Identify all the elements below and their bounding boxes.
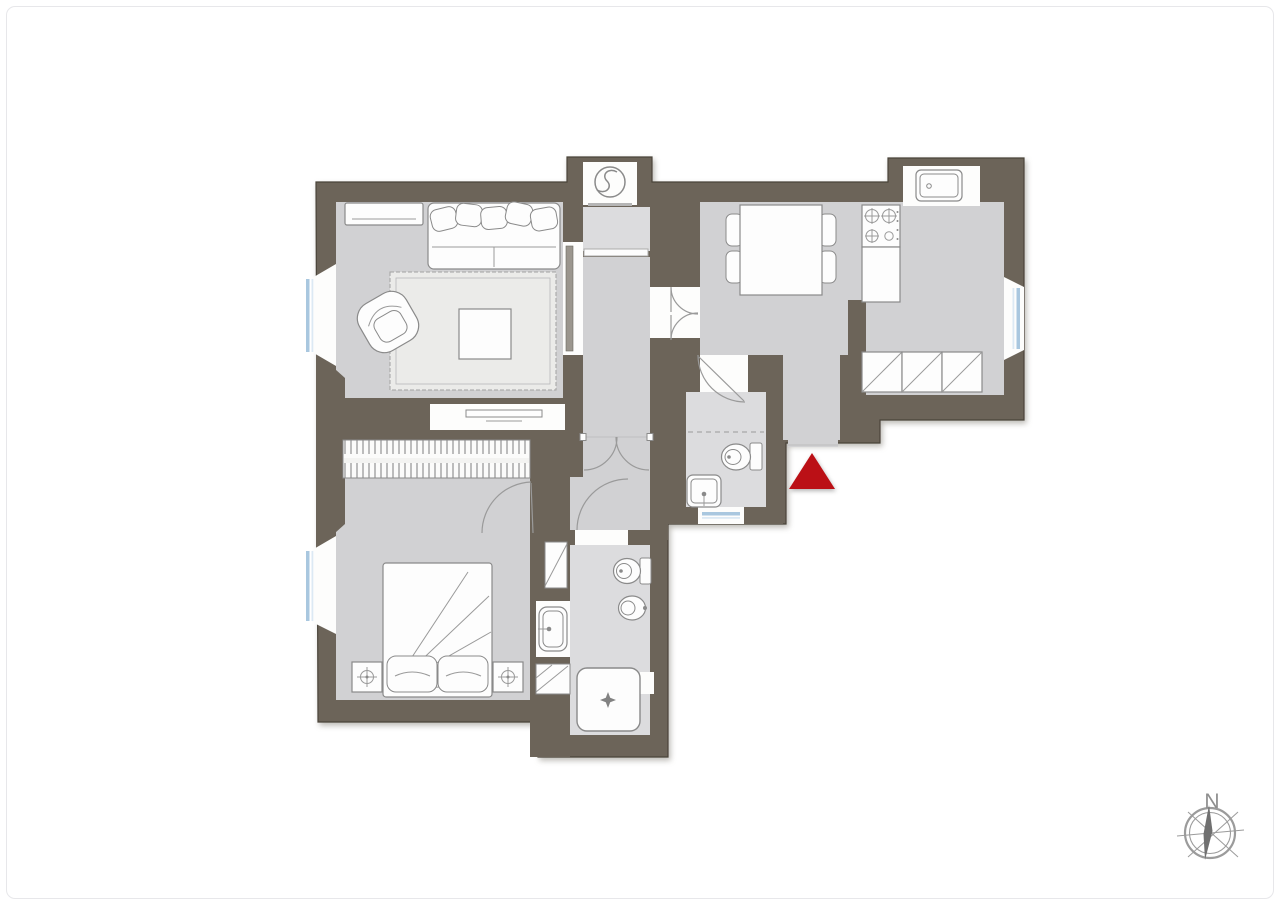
kitchen-sink (903, 166, 980, 206)
nightstand-left (352, 662, 382, 692)
entrance-marker (789, 453, 835, 489)
door-vestibule (584, 249, 648, 256)
bathroom-door-opening (575, 530, 628, 545)
base-cabinets (862, 352, 982, 392)
window-bedroom (306, 536, 336, 634)
sliding-door-panel (566, 246, 573, 351)
coffee-table (459, 309, 511, 359)
wall-left-splay (316, 352, 345, 550)
elevator-cab (583, 162, 637, 205)
window-wc (698, 507, 744, 524)
bath-cabinet-2 (536, 664, 570, 694)
pillow-left (387, 656, 437, 692)
stove (862, 205, 900, 247)
dining-table (740, 205, 822, 295)
pillow-right (438, 656, 488, 692)
vestibule-floor (583, 207, 650, 251)
nightstand-right (493, 662, 523, 692)
wardrobe (343, 440, 530, 478)
entry-opening (788, 422, 838, 447)
window-living (306, 264, 336, 366)
north-label: N (1204, 790, 1219, 813)
wc-door-opening (700, 355, 748, 392)
wc-sink (687, 475, 721, 507)
dining-door-opening (650, 287, 700, 338)
sofa (428, 201, 560, 269)
door-elevator (588, 203, 632, 206)
window-kitchen (1004, 277, 1024, 360)
bathroom-toilet (614, 558, 652, 584)
floor-plan-svg: N (0, 0, 1280, 905)
bath-cabinet-1 (545, 542, 567, 588)
kitchen-counter (862, 247, 900, 302)
compass-rose: N (1177, 790, 1244, 860)
lobby-floor (570, 477, 650, 530)
wall-corridor-dining (650, 202, 700, 287)
bathroom-sink (538, 607, 567, 651)
floor-plan-canvas: N (0, 0, 1280, 905)
wc-toilet (722, 443, 763, 470)
double-bed (383, 563, 492, 697)
console-table (345, 203, 423, 225)
